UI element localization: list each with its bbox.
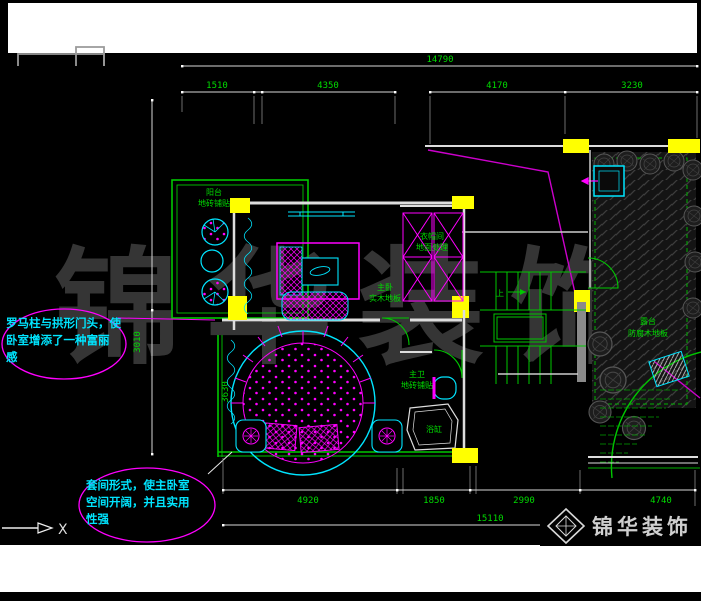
tub-label: 浴缸 bbox=[426, 424, 442, 434]
brand-logo: 锦华装饰 bbox=[540, 506, 701, 546]
dim-top-4350: 4350 bbox=[317, 81, 339, 91]
dim-left-3010: 3010 bbox=[133, 331, 143, 353]
callout-suite-line1: 套间形式，使主卧室 bbox=[86, 478, 190, 492]
callout-suite-line3: 性强 bbox=[86, 512, 109, 526]
round-bed-pillow bbox=[299, 424, 339, 452]
x-axis-label: X bbox=[58, 522, 68, 538]
terrace-finish-label: 防腐木地板 bbox=[628, 328, 668, 338]
column-marker bbox=[668, 139, 700, 153]
bath-label: 主卫 bbox=[409, 369, 425, 379]
dim-top-3230: 3230 bbox=[621, 81, 643, 91]
column-marker bbox=[452, 196, 474, 209]
dim-top-4170: 4170 bbox=[486, 81, 508, 91]
dim-bottom-4740: 4740 bbox=[650, 496, 672, 506]
top-white-margin bbox=[8, 3, 697, 53]
dim-bottom-overall: 15110 bbox=[476, 514, 503, 524]
closet-label: 衣帽间 bbox=[420, 231, 444, 241]
bed-table bbox=[302, 258, 338, 285]
dim-bottom-1850: 1850 bbox=[423, 496, 445, 506]
dim-bottom-4920: 4920 bbox=[297, 496, 319, 506]
column-marker bbox=[452, 448, 478, 463]
balcony-label: 阳台 bbox=[206, 187, 222, 197]
callout-suite-line2: 空间开阔，并且实用 bbox=[86, 495, 190, 509]
bedroom-finish-label: 实木地板 bbox=[369, 293, 401, 303]
balcony-finish-label: 地砖铺贴 bbox=[198, 198, 230, 208]
terrace-label: 露台 bbox=[640, 316, 656, 326]
bottom-white-margin bbox=[0, 545, 701, 592]
callout-roman-line3: 感 bbox=[6, 350, 18, 364]
column-marker bbox=[230, 198, 250, 213]
terrace: 露台 防腐木地板 bbox=[582, 151, 701, 440]
closet-finish-label: 地面处理 bbox=[416, 242, 448, 252]
bed-bench bbox=[282, 292, 348, 320]
dim-interior-3630: 3630 bbox=[221, 381, 231, 403]
callout-roman-line2: 卧室增添了一种富丽 bbox=[6, 333, 110, 347]
nightstand-right bbox=[372, 420, 402, 452]
toilet bbox=[434, 377, 456, 399]
dim-top-overall: 14790 bbox=[426, 55, 453, 65]
bed-pillow bbox=[280, 247, 302, 295]
column-marker bbox=[452, 296, 469, 318]
stair-up-label: 上 bbox=[496, 289, 504, 298]
floorplan-canvas: 锦华装饰 14790 1510 bbox=[0, 0, 701, 601]
brand-name: 锦华装饰 bbox=[592, 514, 692, 539]
bedroom-label: 主卧 bbox=[377, 282, 393, 292]
callout-roman-line1: 罗马柱与拱形门头，使 bbox=[6, 316, 121, 330]
watermark-text: 锦华装饰 bbox=[54, 234, 662, 382]
bath-finish-label: 地砖铺贴 bbox=[401, 380, 433, 390]
dim-bottom-2990: 2990 bbox=[513, 496, 535, 506]
column-marker bbox=[563, 139, 589, 153]
cad-floorplan-page: 锦华装饰 14790 1510 bbox=[0, 0, 701, 601]
dim-top-1510: 1510 bbox=[206, 81, 228, 91]
nightstand-left bbox=[236, 420, 266, 452]
